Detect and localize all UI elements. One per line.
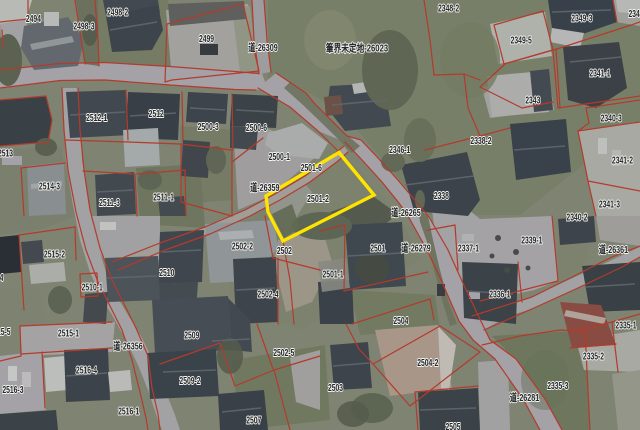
svg-text:2343: 2343: [525, 94, 540, 106]
svg-text:2349: 2349: [628, 7, 640, 19]
svg-text:2512-1: 2512-1: [86, 111, 107, 123]
svg-text:2348-2: 2348-2: [438, 2, 459, 14]
svg-text:2349-3: 2349-3: [571, 12, 592, 24]
svg-text:2341-3: 2341-3: [599, 198, 620, 210]
svg-text:2510-1: 2510-1: [82, 281, 103, 293]
svg-text:道-26356: 道-26356: [113, 339, 142, 352]
svg-text:2514-3: 2514-3: [39, 180, 60, 192]
svg-text:2516-4: 2516-4: [76, 364, 97, 376]
svg-text:2504: 2504: [393, 314, 408, 326]
svg-text:2515-2: 2515-2: [44, 248, 65, 260]
svg-text:2500-3: 2500-3: [198, 120, 219, 132]
svg-text:2512: 2512: [149, 108, 164, 120]
svg-text:2504-2: 2504-2: [417, 356, 438, 368]
svg-text:2516-1: 2516-1: [118, 405, 139, 417]
svg-text:2335-2: 2335-2: [583, 350, 604, 362]
svg-text:2341-1: 2341-1: [589, 67, 610, 79]
svg-text:2339-1: 2339-1: [521, 234, 542, 246]
svg-text:2502-4: 2502-4: [257, 288, 278, 300]
svg-text:道-26279: 道-26279: [401, 241, 430, 254]
svg-text:2501-1: 2501-1: [323, 268, 344, 280]
svg-text:2335-3: 2335-3: [547, 379, 568, 391]
svg-text:2500-1: 2500-1: [269, 151, 290, 163]
svg-text:2499: 2499: [199, 33, 214, 45]
svg-text:2502: 2502: [277, 245, 292, 257]
svg-text:2338: 2338: [434, 189, 449, 201]
svg-text:2335-1: 2335-1: [615, 319, 636, 331]
svg-text:2341-2: 2341-2: [612, 154, 633, 166]
svg-text:2349-5: 2349-5: [511, 34, 532, 46]
svg-text:2340-2: 2340-2: [566, 211, 587, 223]
svg-text:2501-2: 2501-2: [307, 192, 329, 204]
svg-text:2338-2: 2338-2: [470, 135, 491, 147]
svg-text:2511-3: 2511-3: [99, 197, 120, 209]
svg-text:2515-5: 2515-5: [0, 326, 11, 338]
svg-text:道-26359: 道-26359: [250, 181, 279, 194]
svg-text:2501: 2501: [370, 242, 385, 254]
svg-text:2516-3: 2516-3: [2, 384, 23, 396]
svg-text:2337-1: 2337-1: [458, 242, 479, 254]
svg-text:2503: 2503: [328, 381, 343, 393]
svg-text:2510: 2510: [159, 266, 174, 278]
svg-text:2502-2: 2502-2: [232, 240, 253, 252]
svg-text:道-26309: 道-26309: [248, 40, 277, 53]
svg-text:2346-1: 2346-1: [389, 144, 410, 156]
svg-text:2494: 2494: [26, 13, 41, 25]
svg-text:道-26361: 道-26361: [599, 243, 628, 256]
svg-text:2498-2: 2498-2: [107, 6, 128, 18]
svg-text:2502-5: 2502-5: [273, 346, 294, 358]
svg-text:2500-6: 2500-6: [246, 121, 267, 133]
svg-text:筆界未定地-26023: 筆界未定地-26023: [325, 41, 388, 54]
svg-text:2515-1: 2515-1: [58, 327, 79, 339]
svg-text:2511-1: 2511-1: [153, 191, 174, 203]
svg-text:2501-6: 2501-6: [301, 162, 322, 174]
svg-text:2498-3: 2498-3: [73, 20, 94, 32]
svg-text:2340-3: 2340-3: [601, 112, 622, 124]
svg-text:2507: 2507: [246, 414, 261, 426]
svg-text:道-26265: 道-26265: [391, 205, 420, 218]
svg-text:2509: 2509: [184, 329, 199, 341]
svg-text:2505: 2505: [445, 420, 460, 430]
svg-text:2336-1: 2336-1: [489, 288, 510, 300]
svg-text:4: 4: [0, 272, 3, 284]
svg-text:2513: 2513: [0, 147, 13, 159]
svg-text:道-26281: 道-26281: [510, 391, 539, 404]
svg-text:2509-2: 2509-2: [179, 374, 200, 386]
